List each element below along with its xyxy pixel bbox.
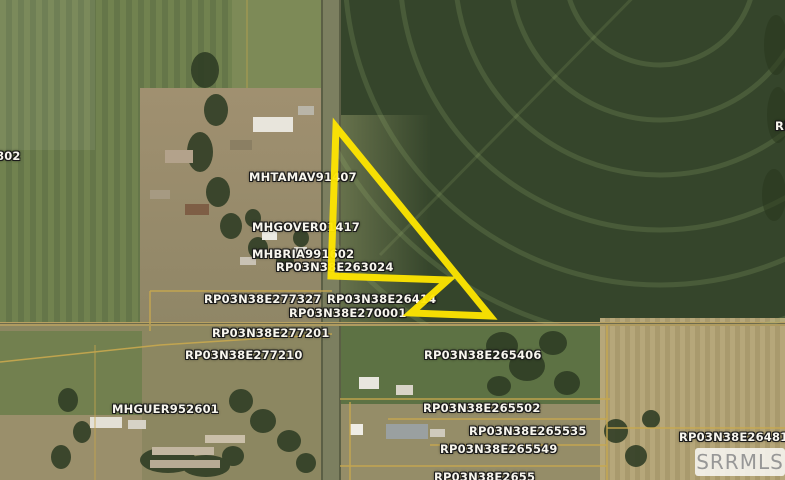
highlight-layer	[0, 0, 785, 480]
srrmls-watermark: SRRMLS	[695, 448, 785, 476]
highlighted-parcel-outline	[331, 127, 490, 316]
satellite-map[interactable]: 802MHTAMAV91407MHGOVER01417MHBRIA991602R…	[0, 0, 785, 480]
